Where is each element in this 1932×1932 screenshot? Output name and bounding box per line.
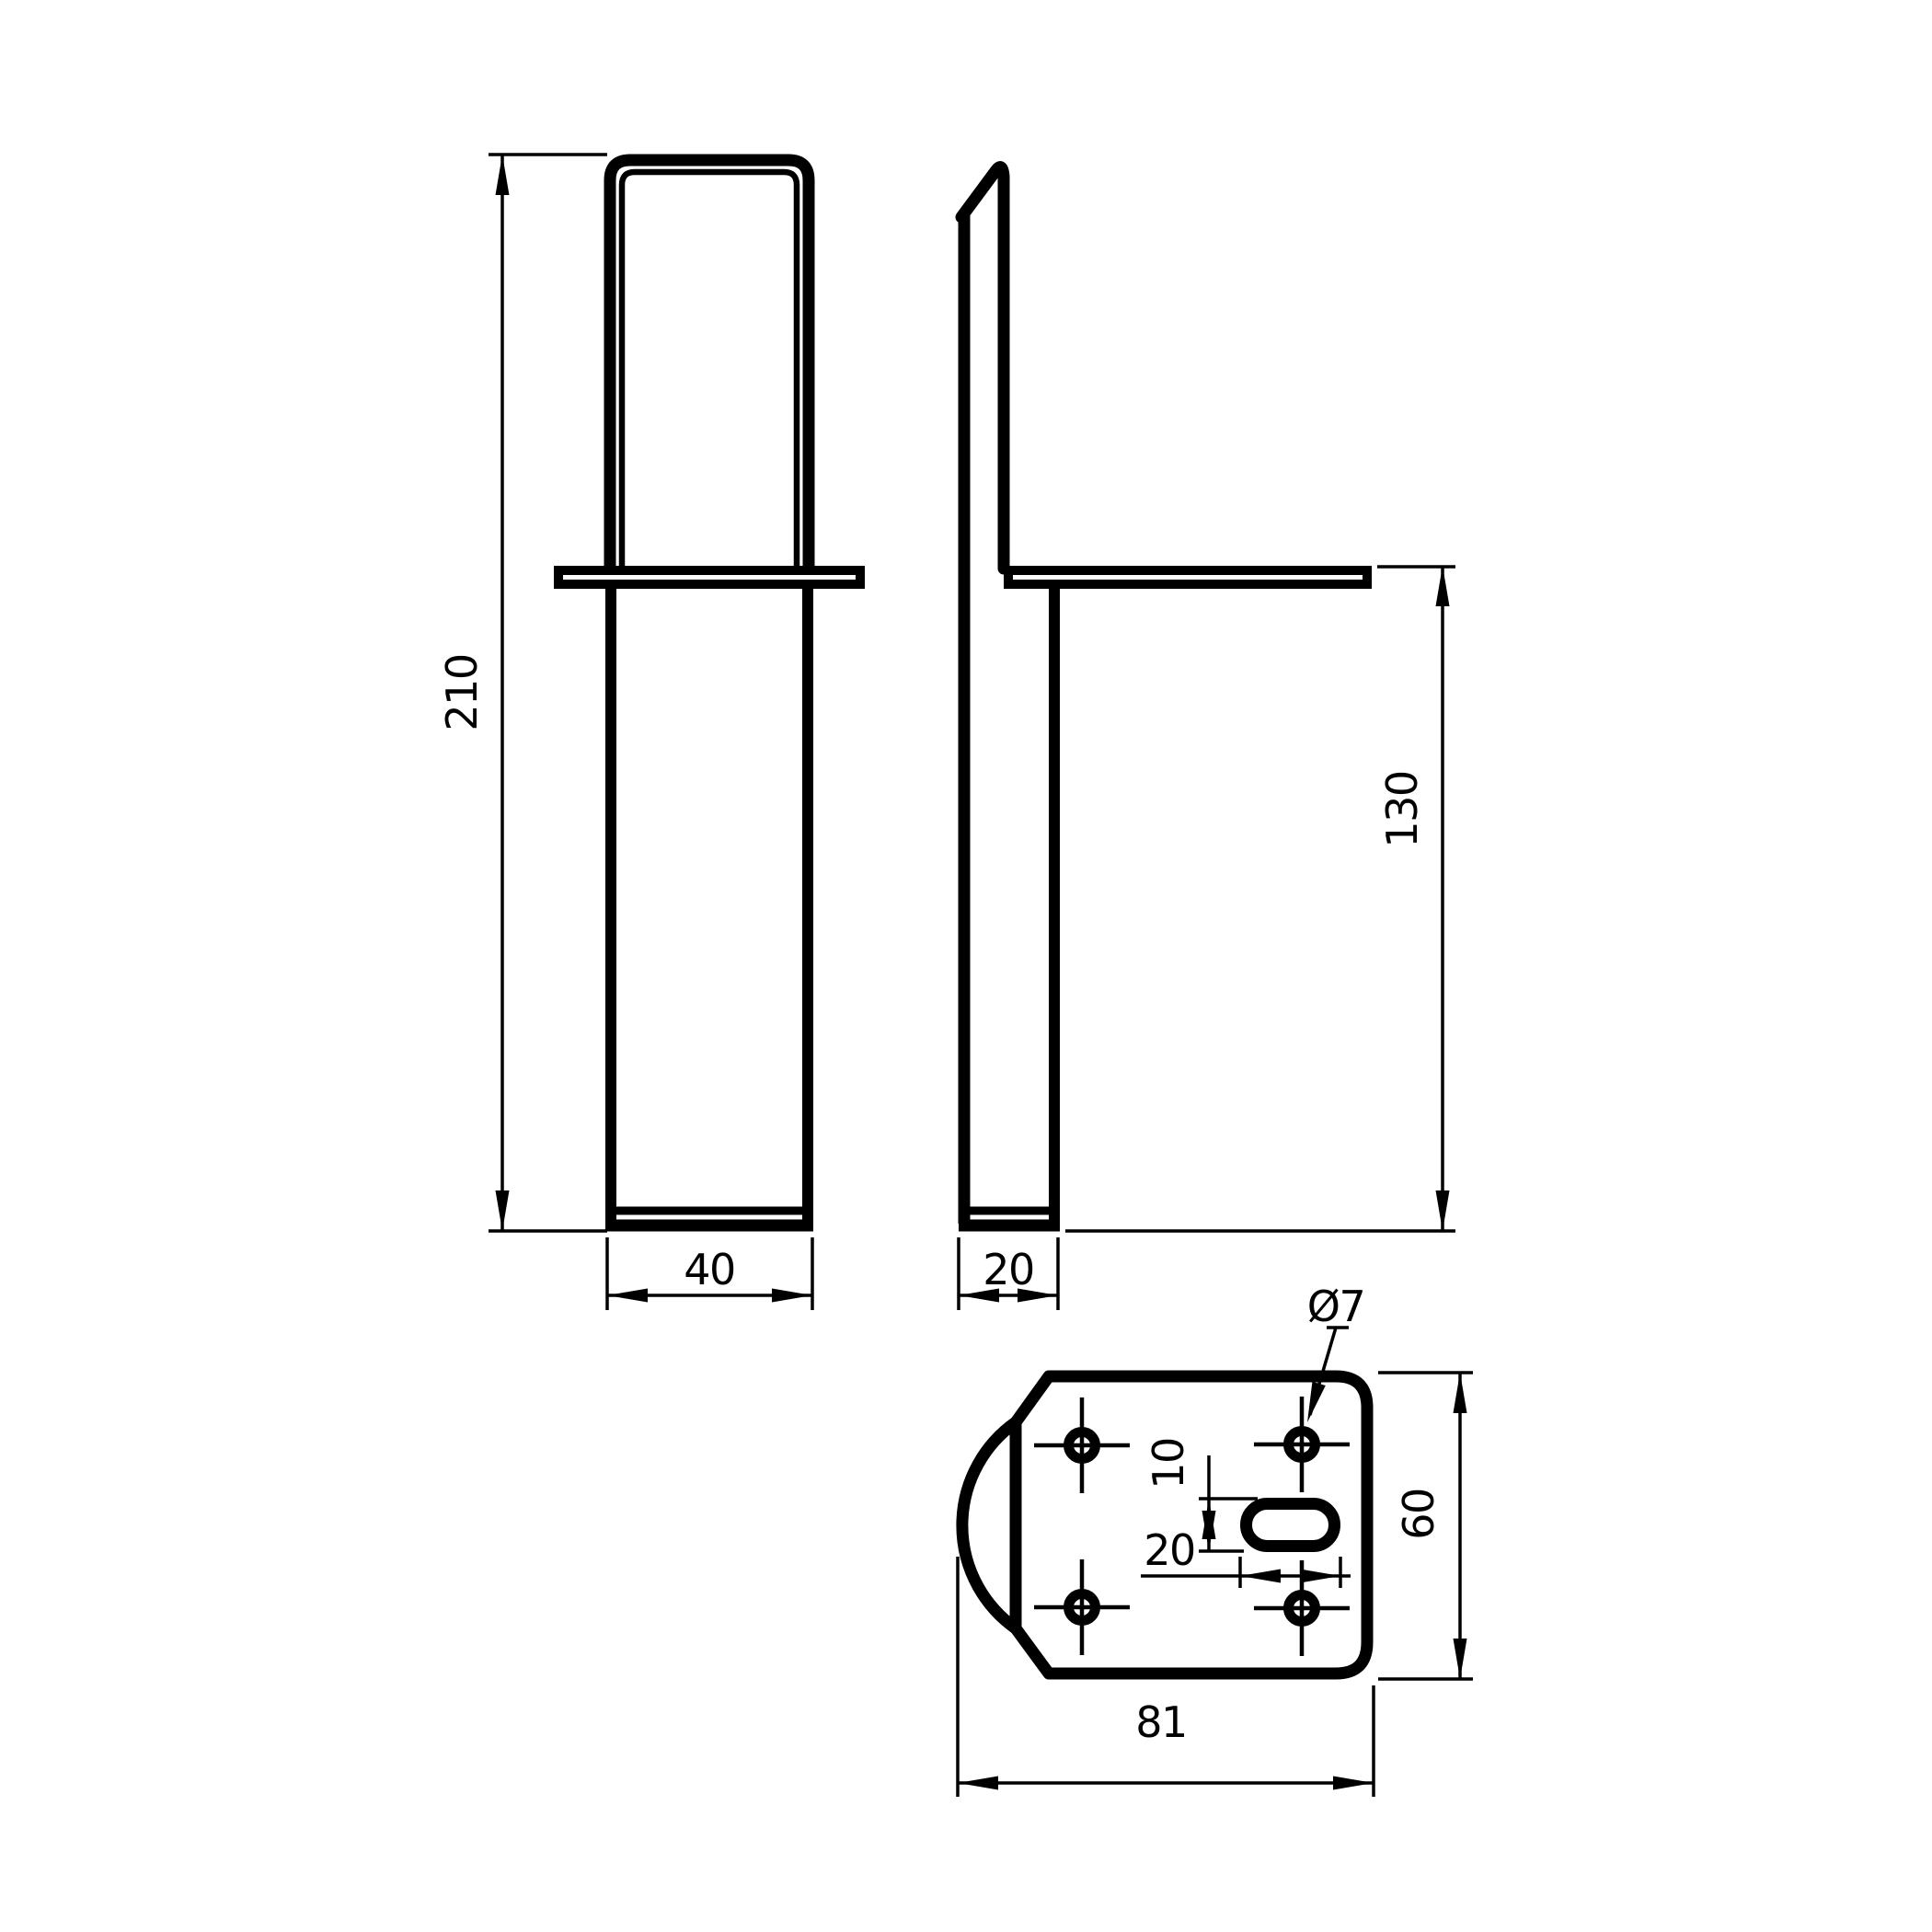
dimension-total-height: 210: [437, 155, 607, 1231]
dimension-mount-height: 130: [1065, 566, 1455, 1231]
hole-diameter-label: Ø7: [1307, 1282, 1364, 1331]
dim-leg-depth-label: 20: [983, 1245, 1034, 1294]
arrowhead-icon: [1301, 1382, 1326, 1424]
dimension-leg-depth: 20: [959, 1237, 1058, 1310]
bottom-leg-profile-arc: [962, 1422, 1016, 1628]
plate-length-label: 81: [1135, 1697, 1187, 1747]
dim-leg-width-label: 40: [684, 1245, 735, 1294]
arrowhead-icon: [496, 1190, 510, 1231]
arrowhead-icon: [496, 155, 510, 195]
hole-diameter-callout: Ø7: [1301, 1282, 1364, 1424]
center-cross: [1254, 1397, 1350, 1492]
bottom-view: Ø7 10 20 60: [958, 1282, 1473, 1797]
slot-width-label: 10: [1144, 1438, 1193, 1489]
front-view: 210 40: [437, 155, 860, 1310]
slot-length-label: 20: [1144, 1525, 1195, 1575]
dimension-leg-width: 40: [607, 1237, 812, 1310]
dim-total-height-label: 210: [437, 654, 487, 730]
center-cross: [1034, 1397, 1130, 1493]
arrowhead-icon: [1333, 1777, 1374, 1790]
side-mounting-plate-edge: [1008, 570, 1367, 584]
arrowhead-icon: [1436, 566, 1450, 606]
side-view: 20 130: [959, 167, 1455, 1310]
arrowhead-icon: [958, 1777, 998, 1790]
arrowhead-icon: [1300, 1570, 1340, 1583]
dim-mount-height-label: 130: [1377, 771, 1427, 847]
arrowhead-icon: [1240, 1570, 1281, 1583]
arrowhead-icon: [1454, 1639, 1467, 1679]
arrowhead-icon: [1454, 1373, 1467, 1413]
center-cross: [1034, 1559, 1130, 1655]
front-upstand-inner-outline: [622, 172, 797, 569]
slotted-hole: [1247, 1504, 1335, 1547]
arrowhead-icon: [607, 1289, 648, 1303]
front-upstand-outer-outline: [610, 160, 809, 569]
arrowhead-icon: [772, 1289, 812, 1303]
front-mounting-plate-edge: [558, 570, 860, 584]
plate-width-label: 60: [1394, 1489, 1443, 1540]
technical-drawing: 210 40 20: [0, 0, 1932, 1932]
dimension-plate-width: 60: [1378, 1373, 1473, 1679]
arrowhead-icon: [1436, 1190, 1450, 1231]
